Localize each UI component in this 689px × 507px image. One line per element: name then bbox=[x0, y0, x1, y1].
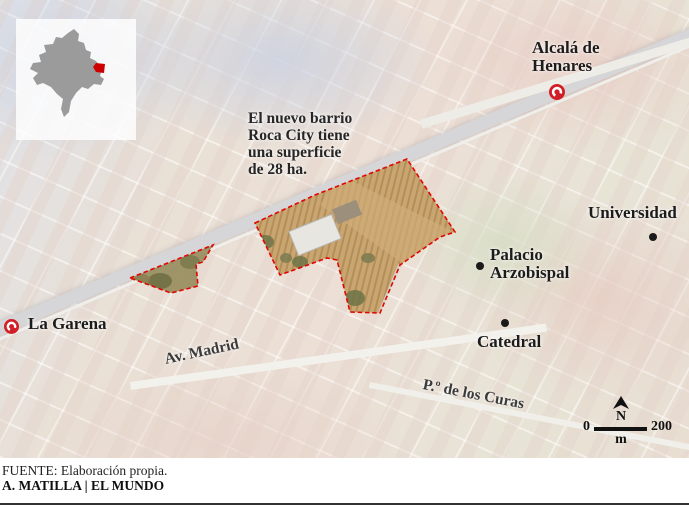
author-credit: A. MATILLA | EL MUNDO bbox=[2, 478, 164, 494]
bottom-rule bbox=[0, 503, 689, 505]
annotation-line: El nuevo barrio bbox=[248, 110, 352, 127]
label-line: Alcalá de bbox=[532, 39, 600, 57]
satellite-map: El nuevo barrio Roca City tiene una supe… bbox=[0, 0, 689, 458]
label-line: Arzobispal bbox=[490, 264, 569, 282]
label-alcala-de-henares: Alcalá de Henares bbox=[532, 39, 600, 76]
source-attribution: FUENTE: Elaboración propia. bbox=[2, 463, 167, 479]
label-line: Palacio bbox=[490, 246, 569, 264]
label-line: Henares bbox=[532, 57, 600, 75]
scale-end-label: 200 bbox=[651, 419, 672, 435]
scale-start-label: 0 bbox=[574, 419, 590, 435]
scale-unit-label: m bbox=[610, 432, 632, 448]
poi-dot-palacio bbox=[476, 262, 484, 270]
label-la-garena: La Garena bbox=[28, 315, 107, 333]
compass-north-label: N bbox=[610, 409, 632, 425]
inset-locator-map bbox=[16, 19, 136, 140]
label-catedral: Catedral bbox=[477, 333, 541, 351]
annotation-line: de 28 ha. bbox=[248, 161, 352, 178]
poi-dot-universidad bbox=[649, 233, 657, 241]
cercanias-station-icon-alcala bbox=[549, 84, 565, 100]
label-universidad: Universidad bbox=[588, 204, 677, 222]
parcel-roca-city bbox=[255, 159, 455, 313]
parcel-small bbox=[130, 245, 213, 293]
label-palacio-arzobispal: Palacio Arzobispal bbox=[490, 246, 569, 283]
annotation-roca-city: El nuevo barrio Roca City tiene una supe… bbox=[248, 110, 352, 178]
madrid-region-silhouette bbox=[16, 19, 136, 140]
cercanias-station-icon-la-garena bbox=[4, 319, 19, 334]
scale-bar bbox=[594, 427, 647, 431]
annotation-line: una superficie bbox=[248, 144, 352, 161]
annotation-line: Roca City tiene bbox=[248, 127, 352, 144]
poi-dot-catedral bbox=[501, 319, 509, 327]
